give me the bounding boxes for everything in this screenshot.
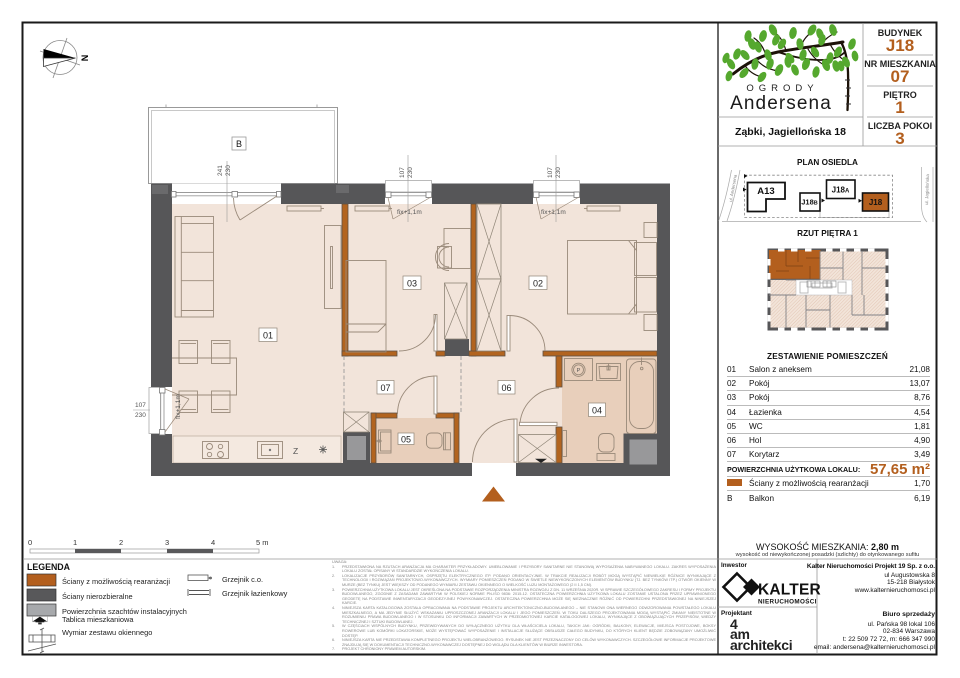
svg-text:0: 0 [28, 538, 32, 547]
svg-text:06: 06 [501, 383, 511, 393]
svg-text:A13: A13 [757, 186, 774, 197]
svg-text:fix+1,1m: fix+1,1m [541, 209, 566, 216]
svg-text:2: 2 [119, 538, 123, 547]
svg-text:5 m: 5 m [256, 538, 269, 547]
svg-text:107: 107 [547, 167, 554, 178]
svg-text:fix+1,1m: fix+1,1m [175, 394, 182, 419]
svg-text:230: 230 [135, 412, 146, 419]
svg-text:05: 05 [401, 434, 411, 444]
svg-text:fix+1,1m: fix+1,1m [397, 209, 422, 216]
svg-text:230: 230 [225, 165, 232, 176]
svg-text:230: 230 [555, 167, 562, 178]
svg-text:4: 4 [211, 538, 215, 547]
svg-text:N: N [80, 55, 90, 62]
svg-text:01: 01 [263, 331, 273, 341]
svg-text:02: 02 [533, 279, 543, 289]
svg-text:J18: J18 [869, 198, 883, 207]
svg-text:ul. Jagiellońska: ul. Jagiellońska [924, 174, 930, 205]
svg-text:107: 107 [135, 402, 146, 409]
svg-text:07: 07 [380, 383, 390, 393]
svg-text:230: 230 [407, 167, 414, 178]
svg-text:B: B [236, 139, 242, 149]
svg-text:1: 1 [73, 538, 77, 547]
svg-text:04: 04 [592, 406, 602, 416]
svg-text:P: P [577, 368, 581, 374]
svg-text:3: 3 [165, 538, 169, 547]
svg-text:NIERUCHOMOŚCI: NIERUCHOMOŚCI [758, 597, 817, 606]
svg-text:241: 241 [217, 165, 224, 176]
svg-text:03: 03 [407, 279, 417, 289]
svg-text:KALTER: KALTER [758, 582, 821, 599]
svg-text:Z: Z [293, 446, 298, 456]
svg-text:107: 107 [399, 167, 406, 178]
